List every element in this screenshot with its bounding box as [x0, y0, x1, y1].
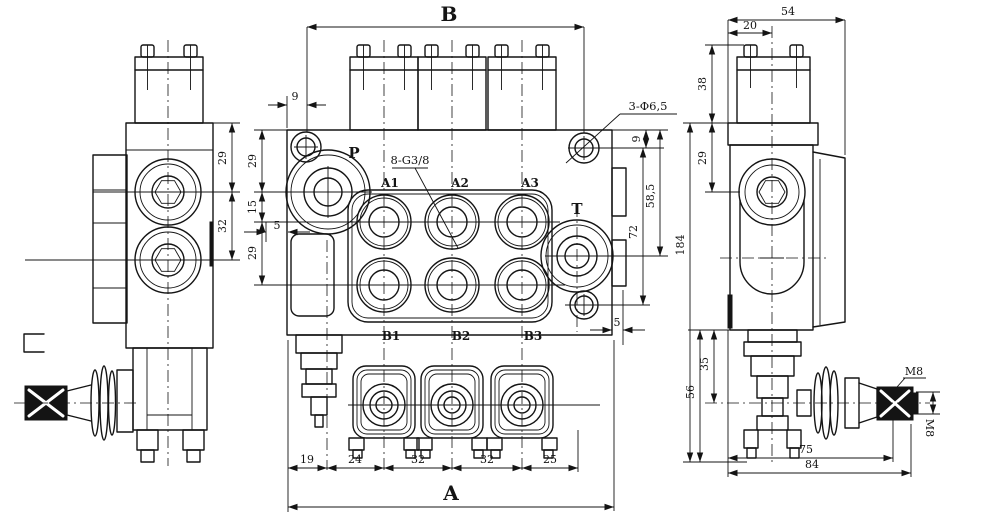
- right-view-cap: [737, 45, 810, 123]
- dim-label-35: 35: [698, 357, 711, 371]
- dim-label-a: A: [442, 481, 459, 505]
- left-dim-29: 29: [216, 151, 229, 165]
- dim-label-29-lower: 29: [246, 246, 259, 260]
- valve-technical-drawing: 29 32: [0, 0, 1000, 523]
- dim-label-56: 56: [684, 385, 697, 399]
- port-label-a3: A3: [520, 176, 539, 190]
- dim-label-20: 20: [743, 19, 757, 32]
- dim-label-5-right: 5: [614, 316, 621, 329]
- dim-label-15: 15: [246, 200, 259, 214]
- dim-label-54: 54: [781, 5, 795, 18]
- dim-label-9-right: 9: [630, 136, 643, 143]
- front-dims-right: 9 58,5 72 5: [590, 130, 660, 345]
- dim-label-32b: 32: [480, 453, 494, 466]
- dim-label-5-left: 5: [274, 219, 281, 232]
- note-8-g38: 8-G3/8: [391, 153, 430, 167]
- note-m8-side: M8: [916, 392, 940, 437]
- right-side-view: M8 M8 54 20 38 29 184 56 35 75 84: [674, 5, 940, 477]
- dim-label-9-top: 9: [292, 90, 299, 103]
- dim-label-72: 72: [627, 225, 640, 239]
- port-label-a2: A2: [450, 176, 469, 190]
- port-label-t: T: [571, 200, 583, 218]
- left-side-view: 29 32: [14, 40, 240, 466]
- front-view-spool-bracket: [296, 335, 342, 427]
- dim-label-184: 184: [674, 235, 687, 256]
- front-dim-9-top: 9: [268, 90, 326, 128]
- port-label-b3: B3: [524, 329, 543, 343]
- thread-label-m8-top: M8: [905, 365, 923, 378]
- dim-label-24: 24: [348, 453, 362, 466]
- port-label-b2: B2: [452, 329, 471, 343]
- port-label-b1: B1: [382, 329, 401, 343]
- dim-label-29-right: 29: [696, 151, 709, 165]
- right-view-bottom-section: [744, 330, 801, 458]
- front-view-bottom-port-blocks: [349, 366, 557, 458]
- dim-label-29-upper: 29: [246, 154, 259, 168]
- front-view: P T A1 A2 A3 B1 B2 B3 8-G3/8 3-Φ6,5 B 9 …: [244, 2, 677, 512]
- dim-label-58-5: 58,5: [644, 184, 657, 209]
- left-dim-32: 32: [216, 219, 229, 233]
- port-label-a1: A1: [380, 176, 399, 190]
- dim-label-25: 25: [543, 453, 557, 466]
- dim-label-32a: 32: [411, 453, 425, 466]
- thread-label-m8-side: M8: [923, 419, 936, 437]
- left-view-dimensions: 29 32: [25, 123, 240, 260]
- front-view-port-boss: [286, 150, 613, 322]
- right-view-body: [728, 123, 845, 330]
- right-dims-top: 54 20: [728, 5, 845, 155]
- front-view-caps: [350, 45, 556, 130]
- engineering-drawing-page: 29 32: [0, 0, 1000, 523]
- right-dims-left: 38 29 184 56 35: [674, 45, 747, 462]
- left-view-body: [93, 123, 213, 348]
- left-view-cap: [135, 45, 203, 123]
- dim-label-84: 84: [805, 458, 819, 471]
- dim-label-75: 75: [799, 443, 813, 456]
- dim-label-b: B: [441, 2, 458, 26]
- note-m8-top: M8: [897, 365, 926, 387]
- port-label-p: P: [348, 144, 359, 162]
- note-3-dia65: 3-Φ6,5: [629, 99, 668, 113]
- dim-label-19: 19: [300, 453, 314, 466]
- dim-label-38: 38: [696, 77, 709, 91]
